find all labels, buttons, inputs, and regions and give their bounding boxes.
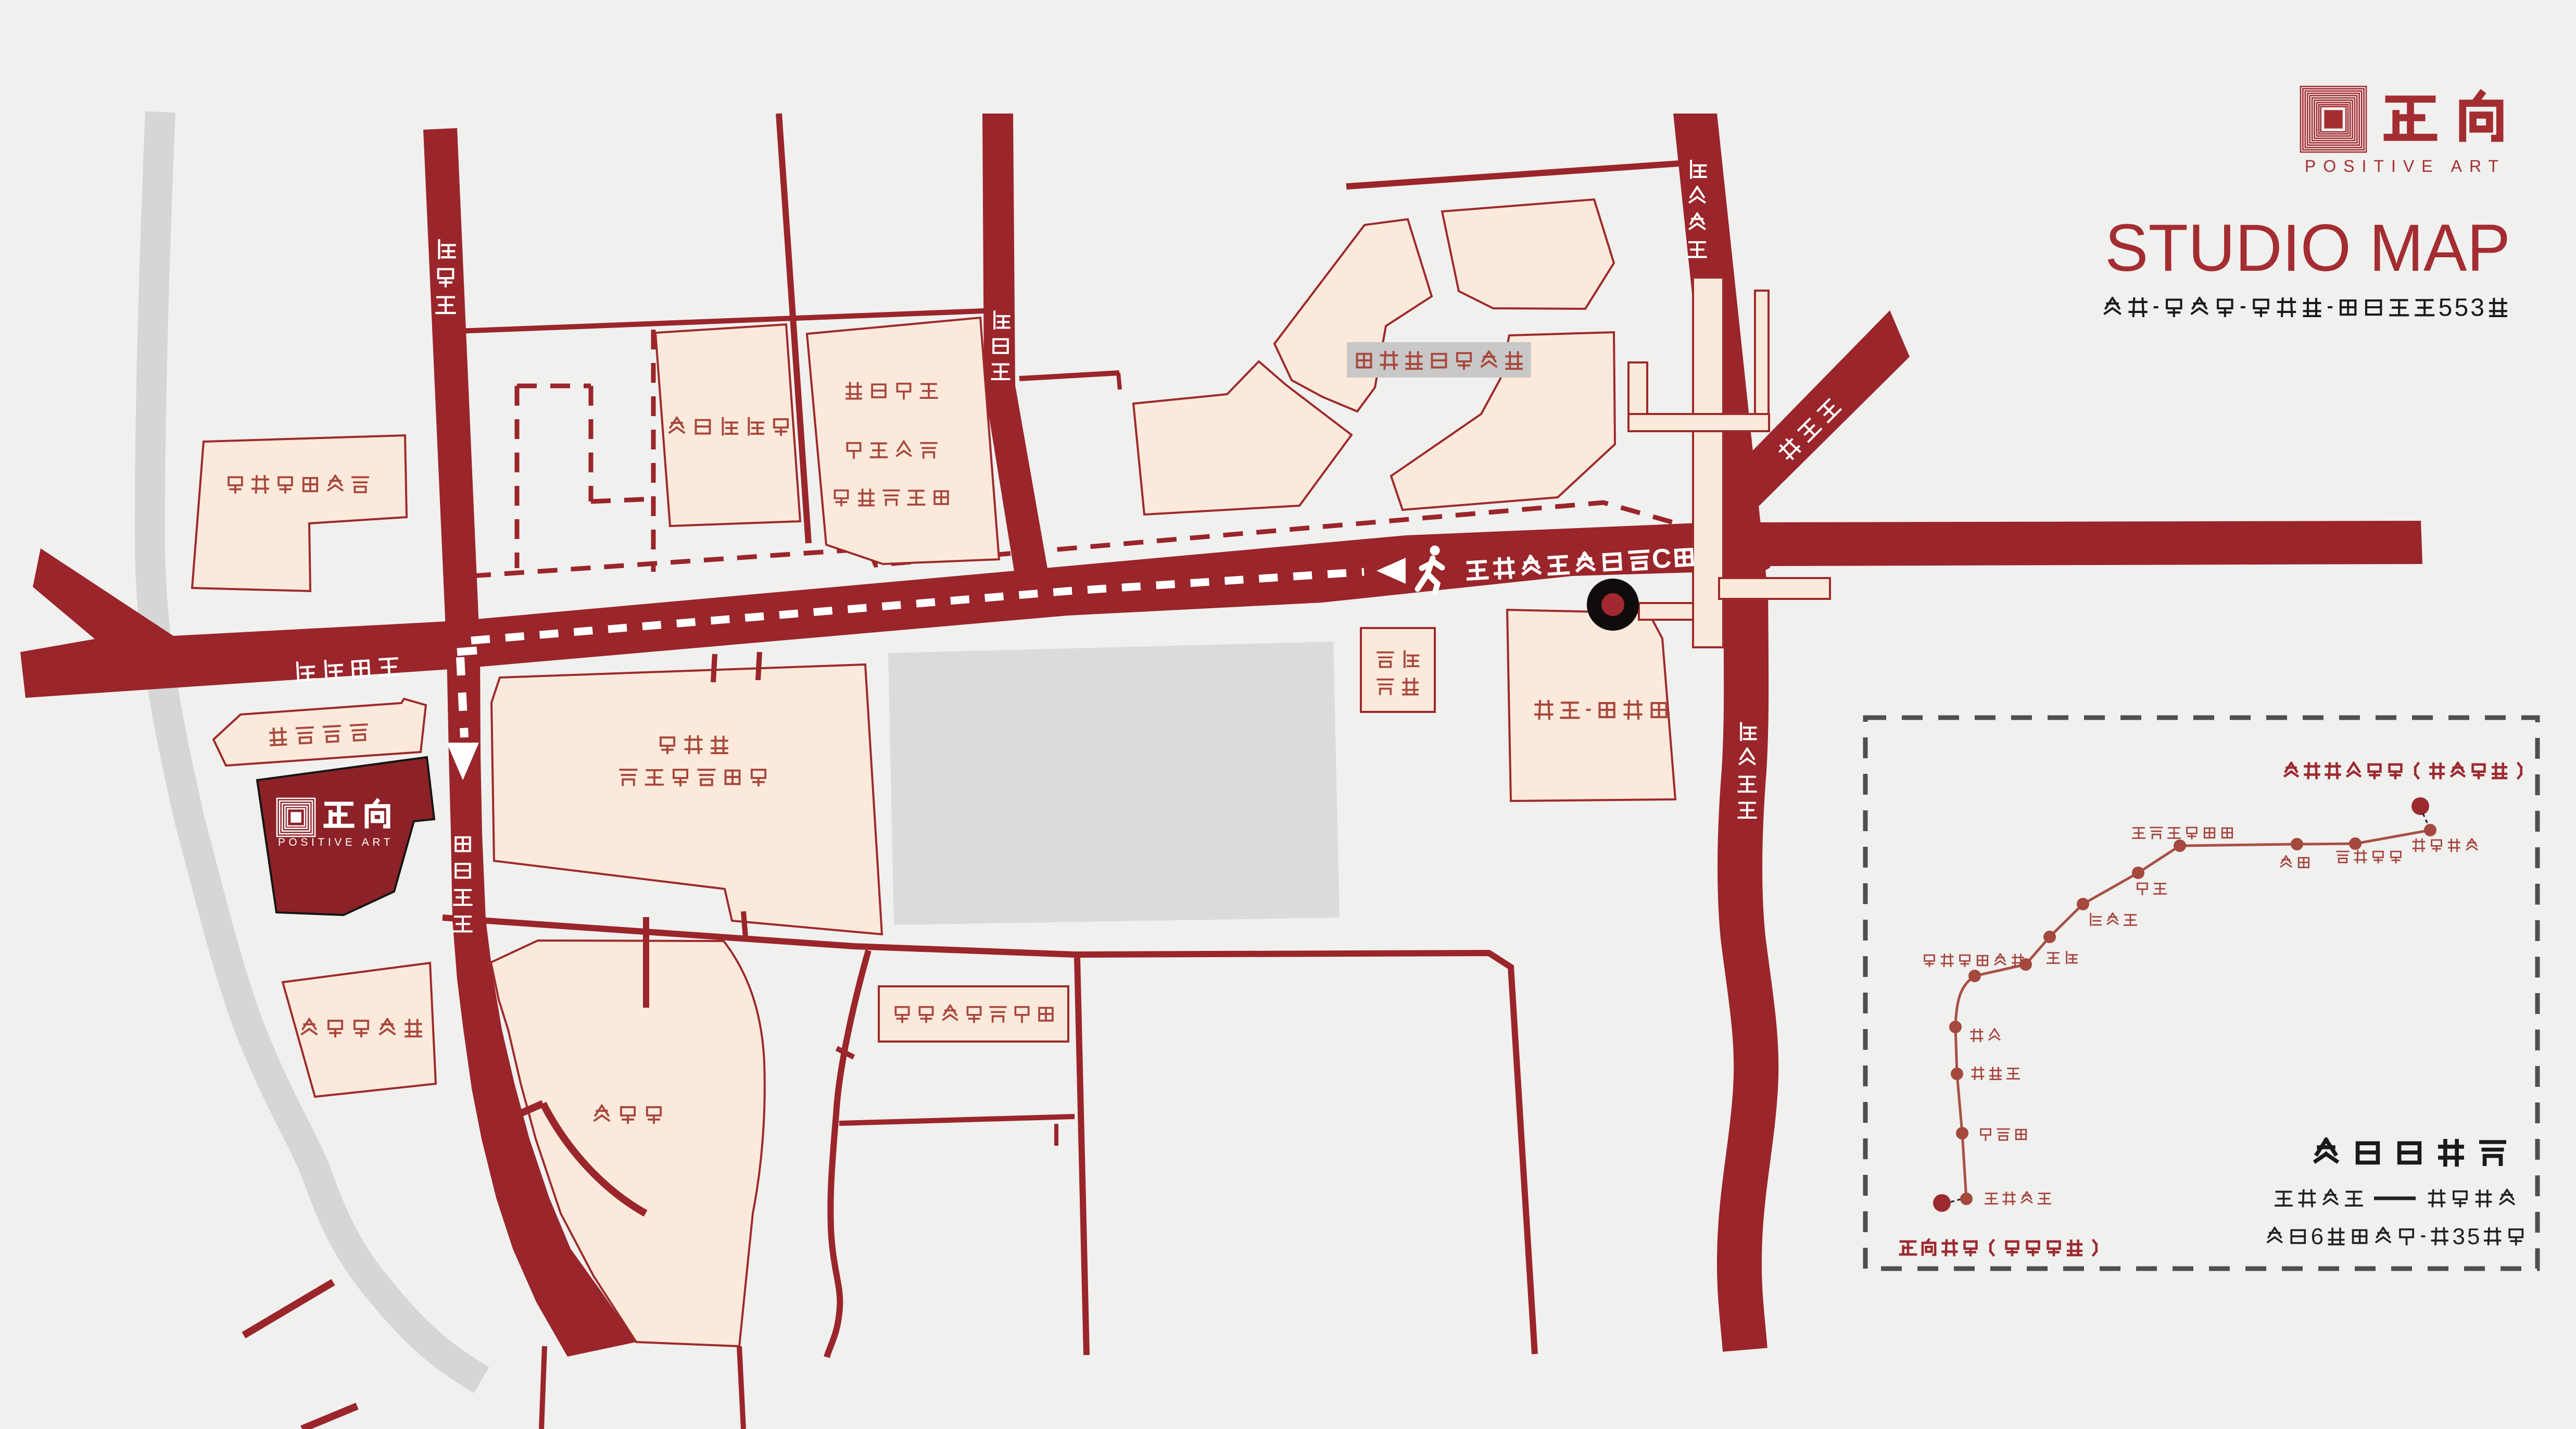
svg-text:5: 5 <box>2467 1224 2480 1249</box>
svg-text:5: 5 <box>2439 294 2453 321</box>
svg-text:3: 3 <box>2470 294 2484 321</box>
svg-text:6: 6 <box>2311 1224 2324 1249</box>
svg-text:C: C <box>1651 543 1672 574</box>
svg-text:STUDIO MAP: STUDIO MAP <box>2105 211 2510 285</box>
svg-text:POSITIVE ART: POSITIVE ART <box>278 836 394 848</box>
svg-text:3: 3 <box>2453 1224 2465 1249</box>
svg-text:5: 5 <box>2454 294 2468 321</box>
svg-text:POSITIVE ART: POSITIVE ART <box>2305 157 2506 176</box>
